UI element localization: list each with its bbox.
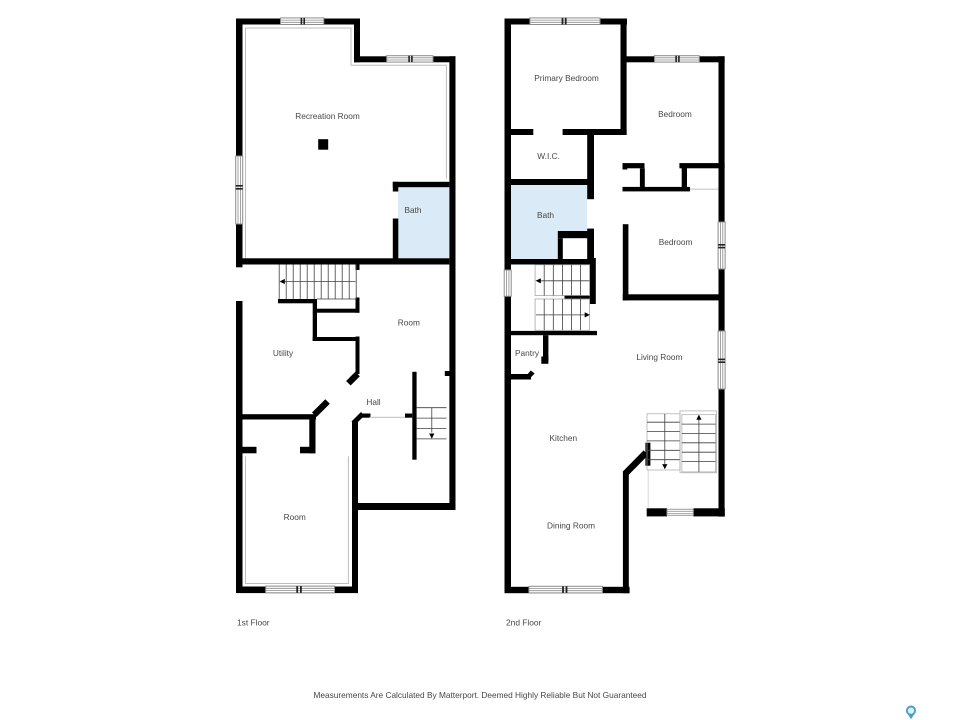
svg-text:2nd Floor: 2nd Floor [506, 618, 542, 628]
svg-text:Living Room: Living Room [636, 352, 682, 362]
svg-text:Bedroom: Bedroom [659, 237, 693, 247]
svg-text:Bedroom: Bedroom [658, 109, 692, 119]
svg-text:1st Floor: 1st Floor [237, 618, 270, 628]
svg-text:Primary Bedroom: Primary Bedroom [534, 73, 599, 83]
svg-text:Bath: Bath [537, 210, 554, 220]
svg-text:Room: Room [398, 318, 420, 328]
svg-text:Bath: Bath [404, 205, 421, 215]
svg-text:Utility: Utility [273, 348, 294, 358]
svg-text:Hall: Hall [366, 397, 380, 407]
svg-text:Room: Room [284, 512, 306, 522]
svg-text:Measurements Are Calculated By: Measurements Are Calculated By Matterpor… [314, 690, 647, 700]
svg-text:Kitchen: Kitchen [549, 433, 577, 443]
svg-text:Dining Room: Dining Room [547, 521, 595, 531]
svg-text:W.I.C.: W.I.C. [537, 151, 560, 161]
svg-text:Pantry: Pantry [515, 348, 540, 358]
svg-text:Recreation Room: Recreation Room [295, 111, 360, 121]
